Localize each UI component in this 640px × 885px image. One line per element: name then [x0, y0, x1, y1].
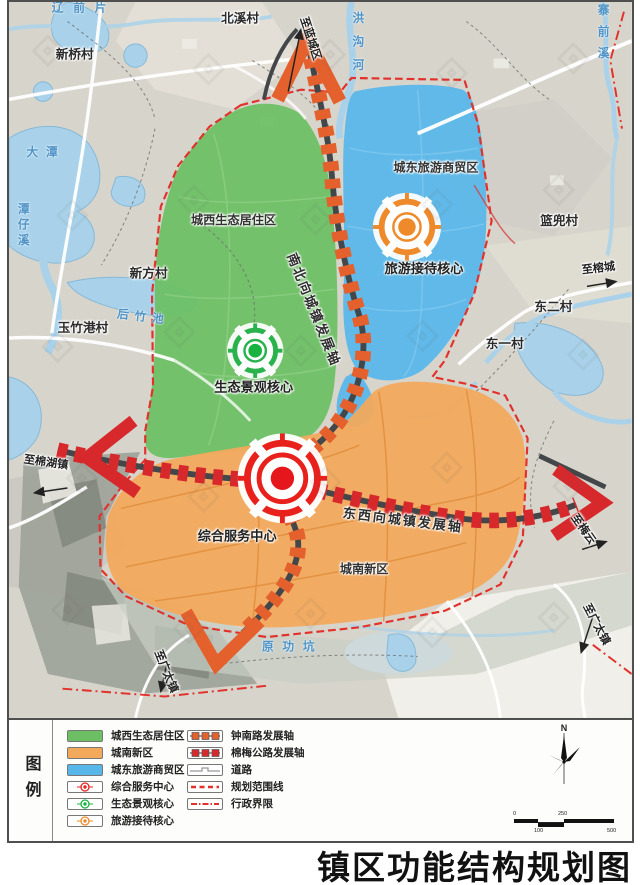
page-title: 镇区功能结构规划图	[317, 841, 640, 885]
core-label-service: 综合服务中心	[198, 530, 277, 544]
zone-east-swatch-icon	[67, 764, 103, 776]
water-label: 原功坑	[262, 641, 323, 653]
village-label: 新方村	[130, 267, 168, 280]
core-symbol-tourism	[373, 193, 441, 261]
water-label: 寨前溪	[597, 4, 609, 68]
village-label: 玉竹港村	[58, 321, 109, 334]
compass-north-label: N	[544, 724, 584, 732]
legend-item: 行政界限	[187, 797, 305, 810]
legend-item: 城东旅游商贸区	[67, 763, 185, 776]
village-label: 东二村	[534, 300, 572, 313]
zone-west-swatch-icon	[67, 730, 103, 742]
core-symbol-eco	[227, 322, 283, 378]
village-label: 北溪村	[221, 12, 259, 25]
water-label: 洪沟河	[351, 12, 363, 82]
village-label: 篮兜村	[540, 214, 578, 227]
map-frame: 北溪村 新桥村 新方村 玉竹港村 篮兜村 东二村 东一村 辽前片 大潭 潭仔溪 …	[7, 0, 634, 843]
zone-label-south: 城南新区	[340, 563, 389, 576]
scale-tick: 0	[513, 811, 516, 817]
core-label-tourism: 旅游接待核心	[385, 262, 464, 276]
planning-map-page: 北溪村 新桥村 新方村 玉竹港村 篮兜村 东二村 东一村 辽前片 大潭 潭仔溪 …	[0, 0, 640, 885]
legend-heading-text: 图例	[19, 755, 43, 807]
water-label: 辽前片	[52, 2, 116, 14]
legend-item: 道路	[187, 763, 305, 776]
legend-item: 城南新区	[67, 746, 185, 759]
legend-column-right: 钟南路发展轴 棉梅公路发展轴 道路	[187, 729, 305, 810]
legend-item: 规划范围线	[187, 780, 305, 793]
village-label: 东一村	[486, 337, 524, 350]
title-bar: 镇区功能结构规划图	[0, 845, 640, 885]
legend-item: 钟南路发展轴	[187, 729, 305, 742]
core-symbol-service	[238, 433, 328, 523]
compass: N	[544, 724, 584, 790]
scale-tick: 500	[607, 828, 616, 834]
scale-tick: 250	[558, 811, 567, 817]
map-graphic	[9, 2, 632, 718]
admin-limit-icon	[187, 798, 223, 810]
legend-item: 生态景观核心	[67, 797, 185, 810]
eco-core-icon	[67, 798, 103, 810]
core-label-eco: 生态景观核心	[214, 381, 293, 395]
zone-south-swatch-icon	[67, 747, 103, 759]
tourism-core-icon	[67, 815, 103, 827]
scale-tick: 100	[534, 828, 543, 834]
planning-boundary-icon	[187, 781, 223, 793]
legend-heading-cell: 图例	[9, 720, 53, 841]
zhongnan-axis-icon	[187, 730, 223, 742]
legend-item: 棉梅公路发展轴	[187, 746, 305, 759]
zone-label-west: 城西生态居住区	[191, 214, 276, 227]
compass-rose-icon	[546, 732, 582, 786]
legend-item: 综合服务中心	[67, 780, 185, 793]
legend-item: 旅游接待核心	[67, 814, 185, 827]
scale-bar: 0 100 250 500	[514, 811, 618, 833]
road-icon	[187, 764, 223, 776]
map-area: 北溪村 新桥村 新方村 玉竹港村 篮兜村 东二村 东一村 辽前片 大潭 潭仔溪 …	[9, 2, 632, 718]
water-label: 潭仔溪	[17, 203, 29, 250]
water-label: 大潭	[27, 146, 66, 158]
mianmei-axis-icon	[187, 747, 223, 759]
legend: 图例 城西生态居住区 城南新区 城东旅游商贸区	[9, 718, 632, 841]
zone-label-east: 城东旅游商贸区	[393, 162, 478, 175]
legend-column-left: 城西生态居住区 城南新区 城东旅游商贸区 综合服务中心	[67, 729, 185, 827]
service-core-icon	[67, 781, 103, 793]
legend-item: 城西生态居住区	[67, 729, 185, 742]
village-label: 新桥村	[56, 48, 94, 61]
